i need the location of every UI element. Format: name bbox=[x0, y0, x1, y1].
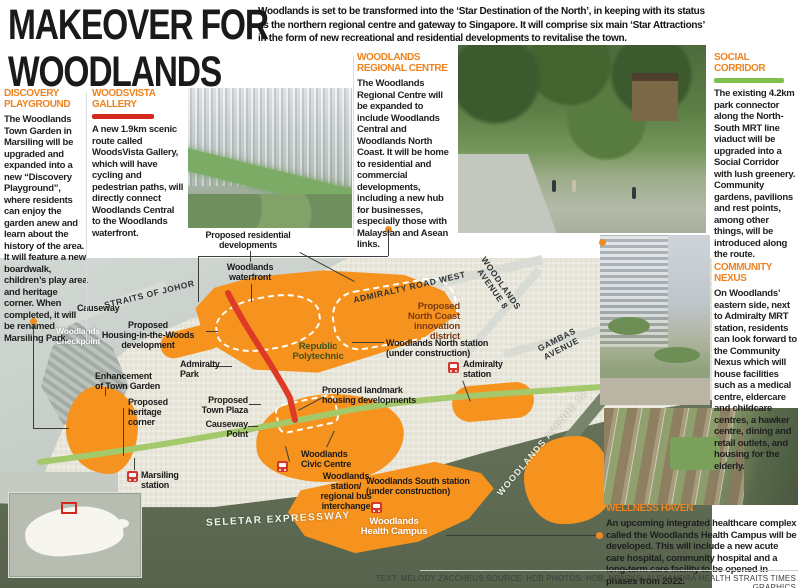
section-discovery-playground: DISCOVERY PLAYGROUND The Woodlands Town … bbox=[4, 88, 88, 344]
label-town-plaza: Proposed Town Plaza bbox=[186, 395, 248, 415]
mrt-station-icon bbox=[127, 471, 138, 482]
pedestrian bbox=[572, 180, 576, 192]
mrt-station-icon bbox=[277, 461, 288, 472]
footer-rule bbox=[420, 570, 798, 571]
section-regional-centre: WOODLANDS REGIONAL CENTRE The Woodlands … bbox=[357, 52, 455, 251]
island-silhouette bbox=[115, 519, 129, 528]
intro-paragraph: Woodlands is set to be transformed into … bbox=[258, 5, 710, 46]
credits-line: TEXT: MELODY ZACCHEUS SOURCE: HDB PHOTOS… bbox=[360, 574, 796, 588]
section-heading: SOCIAL CORRIDOR bbox=[714, 52, 798, 74]
label-woodlands-north-station: Woodlands North station (under construct… bbox=[386, 338, 488, 358]
park-path bbox=[458, 154, 607, 233]
label-causeway-point: Causeway Point bbox=[196, 419, 248, 439]
section-heading: COMMUNITY NEXUS bbox=[714, 262, 798, 284]
section-body: The Woodlands Regional Centre will be ex… bbox=[357, 78, 455, 251]
pedestrian bbox=[552, 180, 556, 192]
mrt-station-icon bbox=[448, 362, 459, 373]
callout-line bbox=[123, 408, 124, 456]
label-woodlands-civic-centre: Woodlands Civic Centre bbox=[301, 449, 351, 469]
callout-line bbox=[33, 428, 69, 429]
plaza bbox=[600, 378, 710, 405]
page-title: MAKEOVER FOR WOODLANDS bbox=[8, 2, 268, 96]
pavilion bbox=[632, 73, 678, 121]
section-heading: WOODSVISTA GALLERY bbox=[92, 88, 184, 110]
label-admiralty-station: Admiralty station bbox=[463, 359, 503, 379]
label-proposed-residential-developments: Proposed residential developments bbox=[178, 230, 318, 250]
woodlands-central-render-photo bbox=[188, 88, 352, 228]
label-north-coast-innovation-district: Proposed North Coast innovation district bbox=[352, 302, 460, 342]
callout-line bbox=[251, 284, 252, 302]
green-underline-bar bbox=[714, 78, 784, 83]
label-landmark-housing: Proposed landmark housing developments bbox=[322, 385, 416, 405]
column-divider bbox=[353, 56, 354, 236]
mrt-station-icon bbox=[371, 502, 382, 513]
title-line1: MAKEOVER FOR bbox=[8, 1, 268, 49]
pedestrian bbox=[632, 187, 636, 199]
section-body: The existing 4.2km park connector along … bbox=[714, 88, 798, 261]
label-woodlands-south-station: Woodlands South station (under construct… bbox=[366, 476, 470, 496]
section-social-corridor: SOCIAL CORRIDOR The existing 4.2km park … bbox=[714, 52, 798, 261]
section-body: On Woodlands’ eastern side, next to Admi… bbox=[714, 288, 798, 472]
terrace-greenery bbox=[608, 317, 650, 335]
community-nexus-photo bbox=[600, 235, 710, 405]
label-woodlands-health-campus: Woodlands Health Campus bbox=[338, 517, 450, 537]
label-housing-in-the-woods: Proposed Housing-in-the-Woods developmen… bbox=[88, 320, 208, 350]
column-divider bbox=[86, 92, 87, 342]
woodlands-location-marker bbox=[61, 502, 77, 514]
infographic-canvas: Proposed residential developmentsWoodlan… bbox=[0, 0, 800, 588]
section-woodsvista-gallery: WOODSVISTA GALLERY A new 1.9km scenic ro… bbox=[92, 88, 184, 239]
section-heading: WELLNESS HAVEN bbox=[606, 503, 798, 514]
park-connector-photo bbox=[458, 45, 706, 233]
terrace-greenery bbox=[654, 347, 700, 363]
singapore-inset-map bbox=[8, 492, 142, 578]
section-body: The Woodlands Town Garden in Marsiling w… bbox=[4, 114, 88, 344]
green-courtyard bbox=[670, 437, 720, 470]
red-underline-bar bbox=[92, 114, 154, 119]
callout-line bbox=[134, 458, 135, 470]
section-body: A new 1.9km scenic route called WoodsVis… bbox=[92, 124, 184, 239]
callout-line bbox=[249, 404, 261, 405]
label-admiralty-park: Admiralty Park bbox=[180, 359, 220, 379]
callout-line bbox=[446, 535, 598, 536]
section-heading: DISCOVERY PLAYGROUND bbox=[4, 88, 88, 110]
label-heritage-corner: Proposed heritage corner bbox=[128, 397, 168, 427]
greenery-texture bbox=[188, 194, 352, 228]
callout-dot bbox=[599, 239, 606, 246]
callout-line bbox=[248, 426, 258, 427]
label-woodlands-waterfront: Woodlands waterfront bbox=[196, 262, 304, 282]
callout-dot bbox=[596, 532, 603, 539]
label-enhancement-town-garden: Enhancement of Town Garden bbox=[95, 371, 160, 391]
callout-line bbox=[198, 256, 388, 257]
section-community-nexus: COMMUNITY NEXUS On Woodlands’ eastern si… bbox=[714, 262, 798, 472]
label-marsiling-station: Marsiling station bbox=[141, 470, 179, 490]
section-heading: WOODLANDS REGIONAL CENTRE bbox=[357, 52, 455, 74]
label-republic-polytechnic: Republic Polytechnic bbox=[278, 342, 358, 362]
callout-line bbox=[250, 251, 251, 262]
